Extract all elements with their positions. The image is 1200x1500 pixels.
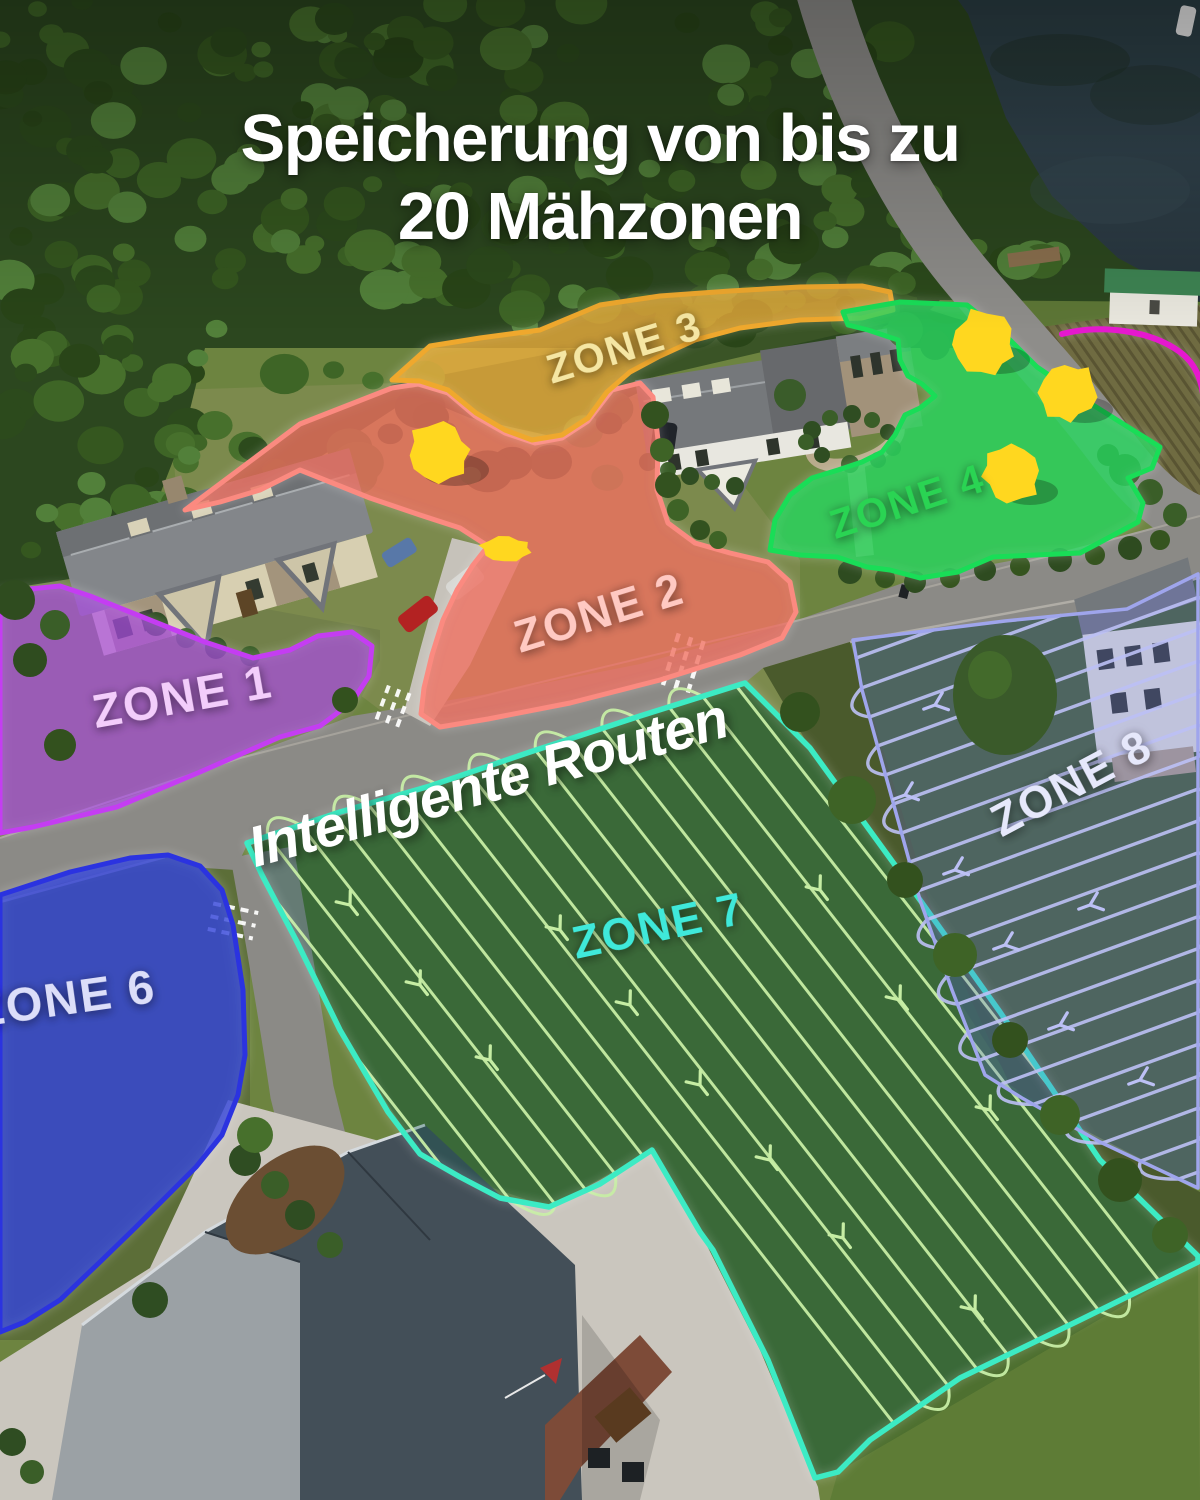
- headline-line-2: 20 Mähzonen: [0, 178, 1200, 256]
- headline: Speicherung von bis zu 20 Mähzonen: [0, 100, 1200, 257]
- headline-line-1: Speicherung von bis zu: [0, 100, 1200, 178]
- marketing-image: ZONE 1 ZONE 2 ZONE 3 ZONE 4 ZONE 6 ZONE …: [0, 0, 1200, 1500]
